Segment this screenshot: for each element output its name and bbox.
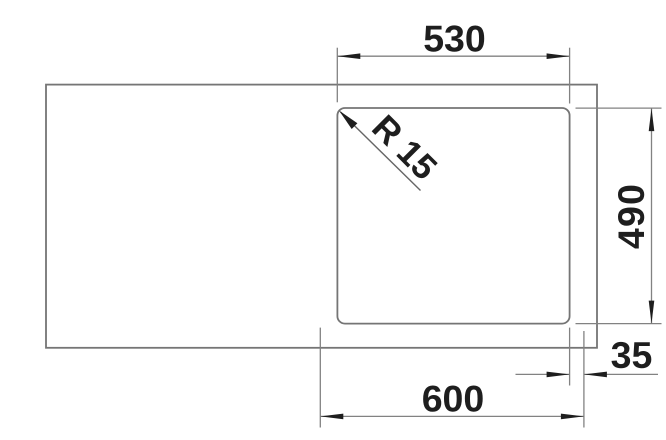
svg-text:530: 530 bbox=[423, 17, 486, 59]
svg-text:600: 600 bbox=[422, 378, 485, 420]
svg-text:490: 490 bbox=[610, 183, 652, 249]
svg-text:35: 35 bbox=[611, 334, 653, 376]
